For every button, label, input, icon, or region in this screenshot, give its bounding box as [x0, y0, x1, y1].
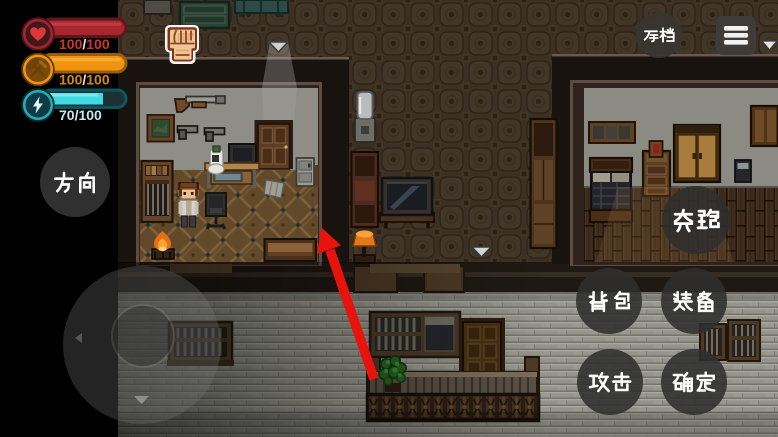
svg-text:70/100: 70/100 — [59, 107, 102, 123]
svg-text:100/100: 100/100 — [59, 72, 110, 88]
svg-text:100/100: 100/100 — [59, 36, 110, 52]
